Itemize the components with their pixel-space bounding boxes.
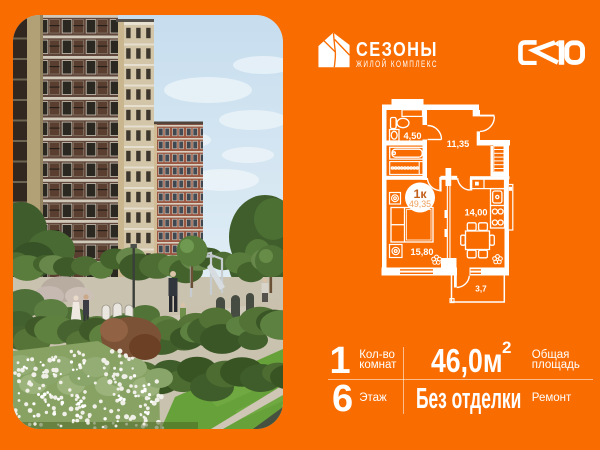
svg-text:3,7: 3,7 <box>475 284 487 293</box>
svg-text:4,50: 4,50 <box>404 131 422 141</box>
svg-text:15,80: 15,80 <box>411 247 434 257</box>
svg-text:14,00: 14,00 <box>465 208 488 218</box>
svg-text:49,35: 49,35 <box>409 199 431 209</box>
svg-text:11,35: 11,35 <box>447 139 469 149</box>
